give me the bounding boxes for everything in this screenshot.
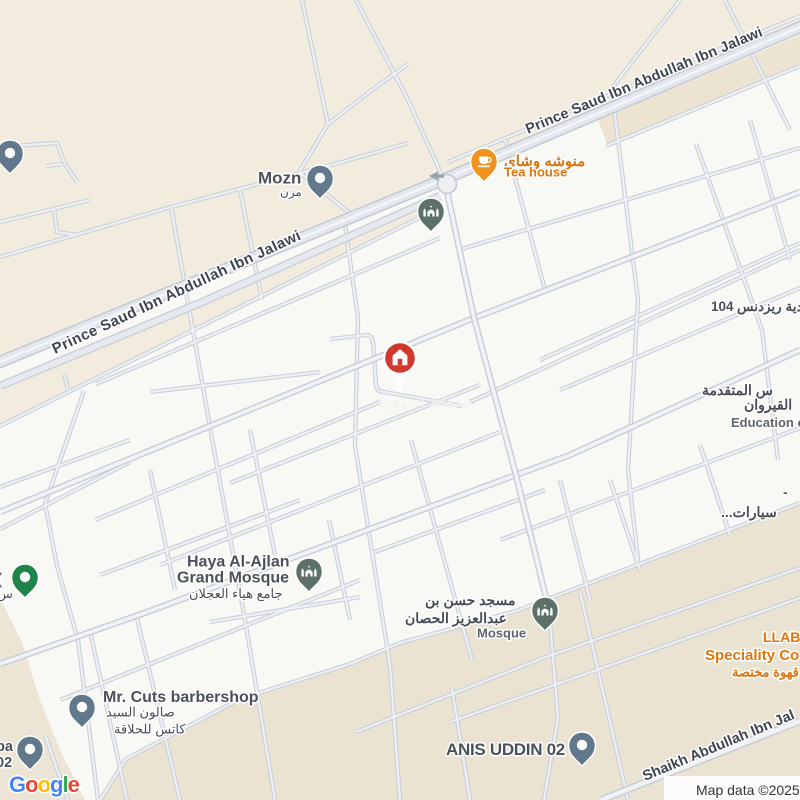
svg-text:عبدالعزيز الحصان: عبدالعزيز الحصان [405, 610, 507, 627]
svg-text:Google: Google [9, 772, 80, 797]
svg-text:...سيارات: ...سيارات [721, 504, 777, 521]
svg-text:Mosque: Mosque [477, 626, 526, 641]
svg-text:Haya Al-Ajlan: Haya Al-Ajlan [187, 554, 290, 571]
svg-text:قهوة مختصة: قهوة مختصة [732, 665, 799, 681]
svg-text:LLABE: LLABE [763, 629, 800, 645]
svg-text:صالون السيد: صالون السيد [106, 705, 175, 721]
svg-text:ANIS UDDIN 02: ANIS UDDIN 02 [446, 740, 565, 759]
svg-text:دية ريزدنس: دية ريزدنس [737, 299, 800, 315]
svg-text:Tea house: Tea house [504, 165, 567, 180]
svg-text:مخطط الجوهرة: مخطط الجوهرة [378, 394, 470, 411]
svg-text:Grand Mosque: Grand Mosque [177, 570, 289, 587]
svg-text:مسجد حسن بن: مسجد حسن بن [425, 592, 516, 609]
svg-text:القيروان: القيروان [744, 397, 792, 414]
svg-text:جامع هياء العجلان: جامع هياء العجلان [189, 586, 283, 602]
svg-text:ba: ba [0, 739, 14, 755]
svg-text:مزن: مزن [280, 185, 302, 199]
svg-text:كاتس للحلاقة: كاتس للحلاقة [114, 722, 186, 738]
svg-text:02: 02 [0, 755, 12, 771]
svg-text:104: 104 [711, 299, 734, 314]
svg-text:Education o: Education o [731, 415, 800, 430]
svg-text:س: س [0, 586, 13, 602]
svg-text:Speciality Co: Speciality Co [705, 647, 799, 664]
svg-text:Mr. Cuts barbershop: Mr. Cuts barbershop [103, 689, 259, 706]
svg-text:-: - [783, 485, 788, 500]
svg-text:Map data ©2025: Map data ©2025 [696, 782, 800, 798]
